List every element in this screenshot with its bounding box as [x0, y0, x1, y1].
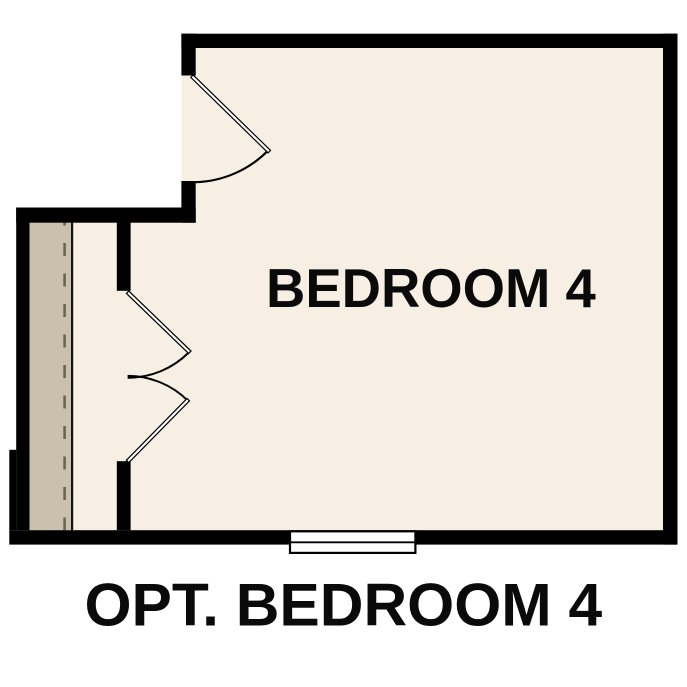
- svg-text:OPT. BEDROOM 4: OPT. BEDROOM 4: [84, 571, 602, 639]
- svg-text:BEDROOM 4: BEDROOM 4: [266, 258, 596, 319]
